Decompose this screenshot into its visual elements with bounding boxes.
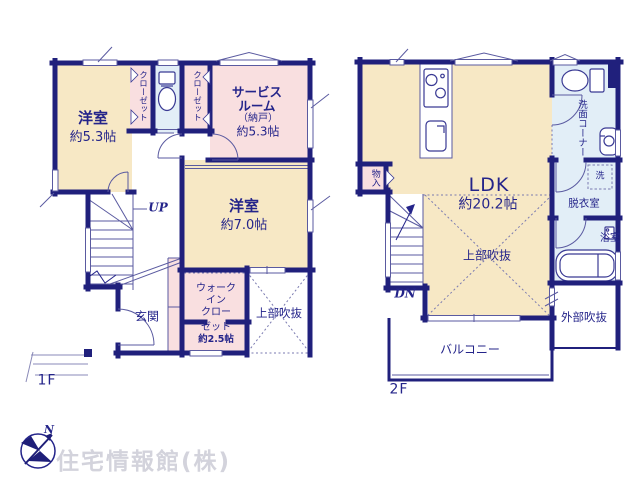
floor1-label: 1F <box>38 374 57 389</box>
porch-post <box>84 349 92 357</box>
floor2-label: 2F <box>390 383 409 398</box>
compass-icon <box>21 433 55 468</box>
floorplan-geometry <box>0 0 640 480</box>
wash-corner-label: 洗面コーナー <box>576 100 586 157</box>
kitchen-sink-icon <box>426 121 446 151</box>
wic-size-label: 約2.5帖 <box>198 335 234 345</box>
porch-steps <box>26 352 88 382</box>
bathtub-icon <box>556 250 618 281</box>
ldk-size-label: 約20.2帖 <box>458 198 517 213</box>
stairs-dn-label: DN <box>394 288 415 301</box>
wall-block <box>608 63 618 88</box>
storage-label: 物入 <box>369 169 378 187</box>
company-watermark: 住宅情報館(株) <box>56 442 231 476</box>
compass-north-label: N <box>44 424 54 436</box>
void-label-2f: 上部吹抜 <box>463 250 511 263</box>
bathroom-label: 浴室 <box>600 234 620 245</box>
toilet-icon-1f <box>159 72 176 111</box>
ldk-label: LDK <box>469 176 510 196</box>
room-label-yoshitsu53: 洋室 <box>78 111 108 127</box>
closet-right-label: クローゼット <box>192 71 201 122</box>
wic-label-1: ウォーク <box>196 284 236 295</box>
dressing-room-label: 脱衣室 <box>568 198 600 209</box>
void-label-1f: 上部吹抜 <box>256 307 302 319</box>
service-room-label-4: 約5.3帖 <box>236 126 279 139</box>
balcony-label: バルコニー <box>440 344 500 357</box>
floorplan-page: 洋室 約5.3帖 クローゼット クローゼット サービス ルーム （納戸） 約5.… <box>0 0 640 480</box>
wic-label-2: イン <box>206 296 226 307</box>
room-size-yoshitsu53: 約5.3帖 <box>70 131 117 145</box>
stairs-1f <box>86 194 147 290</box>
outer-void-label: 外部吹抜 <box>561 311 607 323</box>
room-size-yoshitsu70: 約7.0帖 <box>221 219 268 233</box>
wic-label-3: クロー <box>201 308 231 319</box>
closet-left-label: クローゼット <box>138 71 147 122</box>
service-room-label-2: ルーム <box>238 99 275 112</box>
entrance-label: 玄関 <box>135 311 159 324</box>
stairs-up-label: UP <box>148 202 168 215</box>
room-label-yoshitsu70: 洋室 <box>229 199 259 215</box>
service-room-label-3: （納戸） <box>238 114 278 125</box>
stove-icon <box>424 69 448 107</box>
laundry-label: 洗 <box>595 172 604 181</box>
service-room-label-1: サービス <box>232 85 282 98</box>
wic-label-4: ゼット <box>201 323 231 334</box>
toilet-icon-2f <box>562 69 604 92</box>
